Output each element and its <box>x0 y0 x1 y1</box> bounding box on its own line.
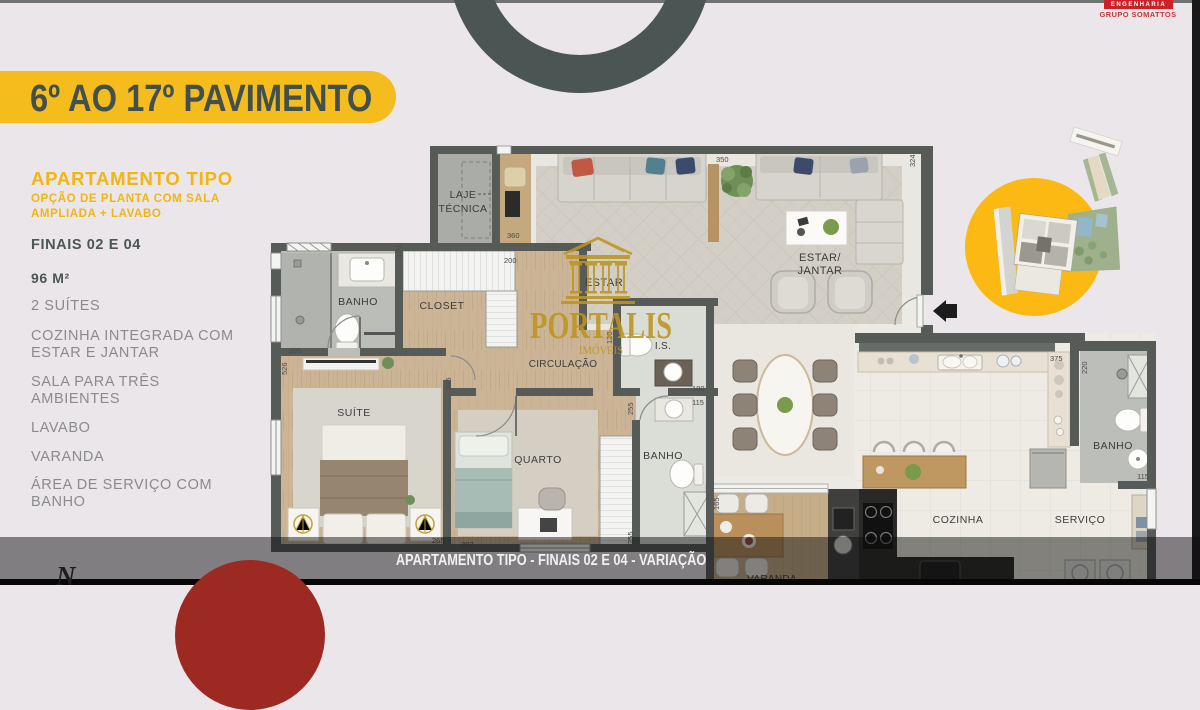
svg-text:170: 170 <box>394 245 403 258</box>
svg-text:255: 255 <box>626 402 635 415</box>
svg-text:324: 324 <box>908 154 917 167</box>
svg-text:IMÓVEIS: IMÓVEIS <box>579 343 623 357</box>
svg-text:200: 200 <box>504 256 517 265</box>
svg-text:QUARTO: QUARTO <box>514 454 562 466</box>
svg-text:CLOSET: CLOSET <box>419 300 464 312</box>
svg-text:JANTAR: JANTAR <box>798 265 843 277</box>
svg-text:526: 526 <box>280 362 289 375</box>
svg-text:TÉCNICA: TÉCNICA <box>439 202 488 215</box>
svg-text:165: 165 <box>712 497 721 510</box>
svg-text:BANHO: BANHO <box>1093 440 1133 452</box>
svg-text:205: 205 <box>289 346 302 355</box>
svg-text:PORTALIS: PORTALIS <box>530 305 672 347</box>
svg-text:LAJE: LAJE <box>450 189 477 201</box>
svg-text:245: 245 <box>444 377 453 390</box>
svg-text:SUÍTE: SUÍTE <box>337 406 370 419</box>
svg-text:375: 375 <box>1050 354 1063 363</box>
svg-text:350: 350 <box>716 155 729 164</box>
svg-text:115: 115 <box>1137 472 1149 481</box>
svg-text:180: 180 <box>692 384 705 393</box>
svg-text:CIRCULAÇÃO: CIRCULAÇÃO <box>529 357 598 370</box>
svg-text:220: 220 <box>1080 361 1089 374</box>
svg-text:BANHO: BANHO <box>338 296 378 308</box>
svg-text:115: 115 <box>692 398 704 407</box>
svg-text:COZINHA: COZINHA <box>933 514 984 526</box>
svg-text:360: 360 <box>507 231 520 240</box>
svg-text:SERVIÇO: SERVIÇO <box>1055 514 1106 526</box>
svg-text:ESTAR/: ESTAR/ <box>799 252 841 264</box>
svg-text:BANHO: BANHO <box>643 450 683 462</box>
